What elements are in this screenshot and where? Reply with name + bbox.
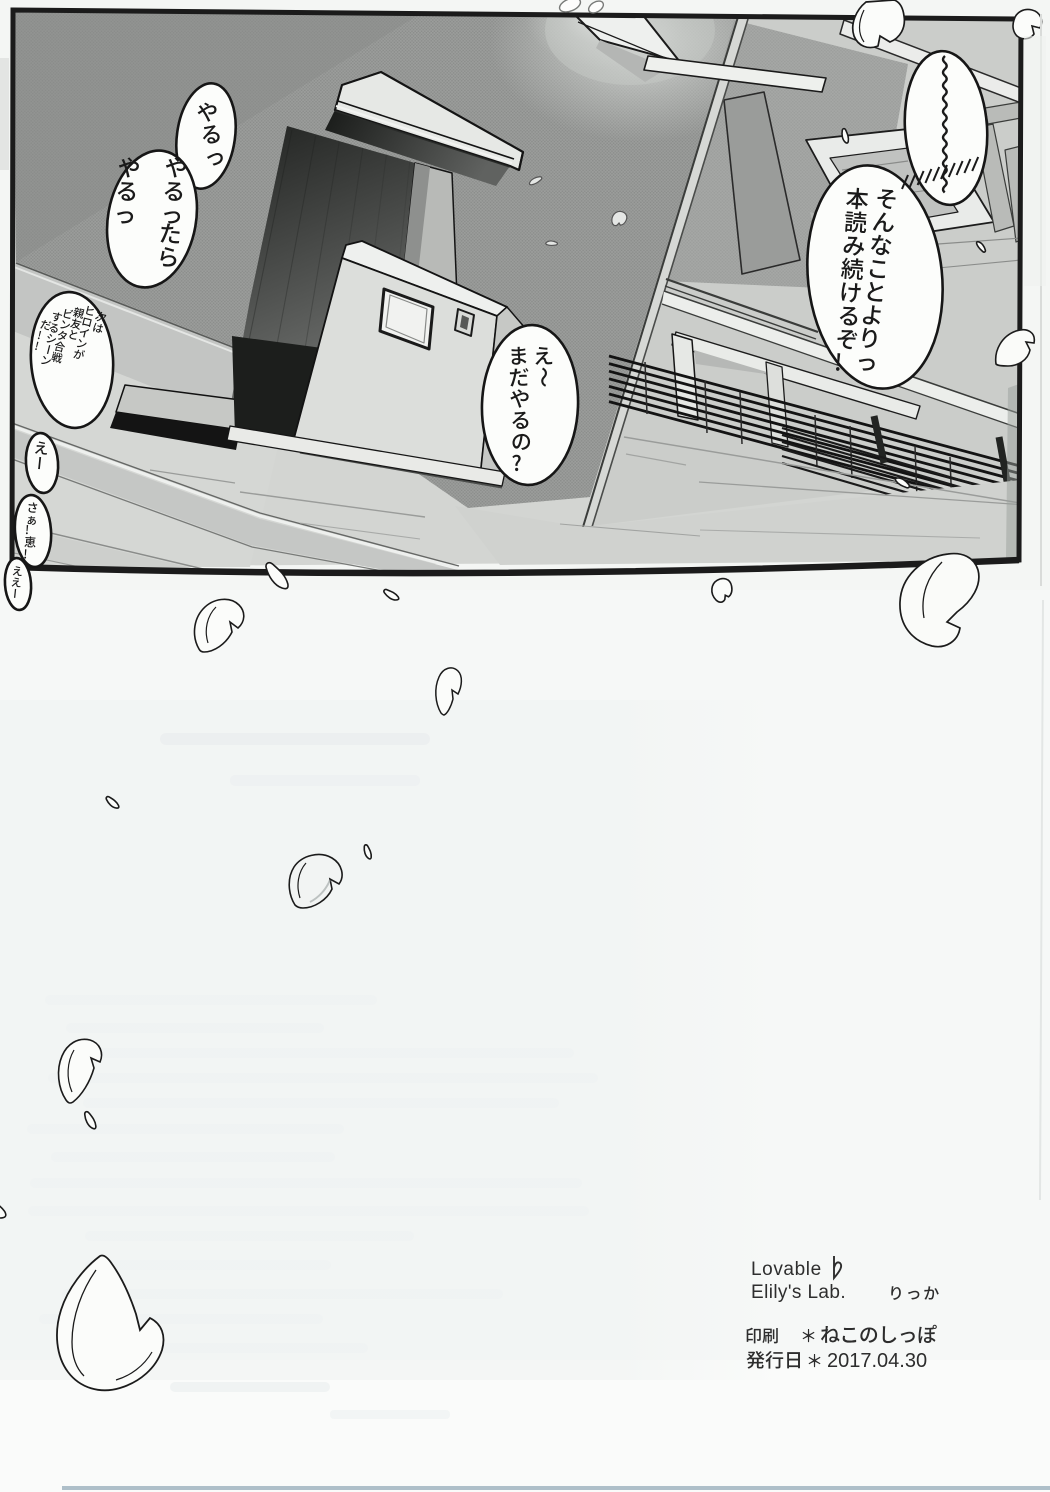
svg-text:Elily's Lab.: Elily's Lab. (751, 1282, 846, 1303)
svg-text:2017.04.30: 2017.04.30 (827, 1350, 927, 1372)
svg-text:Lovable: Lovable (751, 1259, 822, 1280)
